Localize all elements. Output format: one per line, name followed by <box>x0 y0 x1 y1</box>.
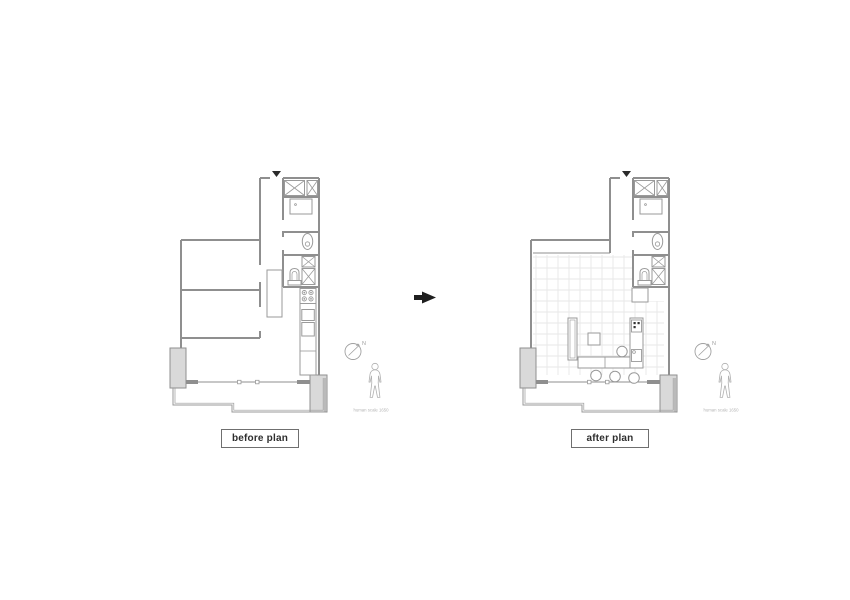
sink-icon <box>632 350 642 362</box>
human-figure-icon <box>719 363 731 397</box>
stool <box>591 370 640 383</box>
entry-marker-icon <box>622 171 631 177</box>
north-indicator-icon: N <box>695 341 716 360</box>
north-label: N <box>712 341 716 347</box>
basin-icon <box>652 234 662 250</box>
induction-hob-icon <box>632 320 642 332</box>
before-plan-drawing: Nhuman scale 1650 <box>160 165 400 425</box>
after-plan: Nhuman scale 1650 after plan <box>510 165 750 465</box>
human-figure-icon <box>369 363 381 397</box>
toilet-icon <box>288 269 301 286</box>
before-plan: Nhuman scale 1650 before plan <box>160 165 400 465</box>
human-scale-caption: human scale 1650 <box>703 408 739 413</box>
kitchen-counter <box>300 304 316 376</box>
entry-marker-icon <box>272 171 281 177</box>
basin-icon <box>302 234 312 250</box>
after-plan-label-text: after plan <box>586 433 633 444</box>
before-plan-label: before plan <box>221 429 299 448</box>
before-plan-label-text: before plan <box>232 433 288 444</box>
toilet-icon <box>638 269 651 286</box>
stove-icon <box>300 289 316 304</box>
washing-machine-icon <box>290 199 312 214</box>
north-label: N <box>362 341 366 347</box>
washing-machine-icon <box>640 199 662 214</box>
counter-cabinet <box>632 288 648 302</box>
human-scale-caption: human scale 1650 <box>353 408 389 413</box>
hall-cabinet <box>267 270 282 317</box>
transition-arrow-icon <box>414 290 438 305</box>
floor-plan-comparison: Nhuman scale 1650 before plan Nhuman sca… <box>0 0 850 600</box>
after-plan-label: after plan <box>571 429 649 448</box>
after-plan-drawing: Nhuman scale 1650 <box>510 165 750 425</box>
north-indicator-icon: N <box>345 341 366 360</box>
